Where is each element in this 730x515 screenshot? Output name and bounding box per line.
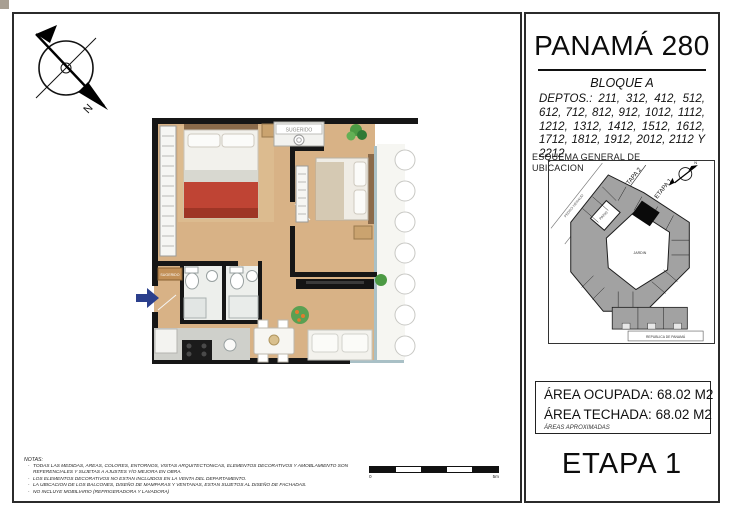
sugerido-top-label: SUGERIDO <box>286 128 313 134</box>
toilet-tank <box>230 267 243 273</box>
site-plan: PEDRO HERAUD ETAPA 2 ETAPA 1 N PATIO <box>549 161 714 343</box>
title-block: PANAMÁ 280 BLOQUE A DEPTOS.: 211, 312, 4… <box>524 12 720 503</box>
kitchen-sink-icon <box>224 339 236 351</box>
notes: NOTAS: - TODAS LAS MEDIDAS, AREAS, COLOR… <box>24 457 360 496</box>
etapa-1-label: ETAPA 1 <box>653 177 674 200</box>
toilet-icon <box>186 273 199 289</box>
fridge <box>155 329 177 353</box>
pillow <box>188 134 220 147</box>
tv-console <box>296 279 374 289</box>
bed-2-headboard <box>368 154 374 224</box>
building-ring <box>571 175 690 311</box>
corner-artifact <box>0 0 9 9</box>
balcony <box>377 144 415 360</box>
jardin-label: JARDIN <box>633 251 646 255</box>
sink-icon <box>207 271 218 282</box>
scale-min: 0 <box>369 474 372 479</box>
window-wall <box>374 146 377 360</box>
north-label: N <box>81 102 95 116</box>
plant-icon <box>375 274 387 286</box>
street-bottom-label: REPUBLICA DE PANAMÁ <box>646 335 686 339</box>
pillow <box>222 134 254 147</box>
compass-pennant-icon <box>36 25 57 43</box>
scale-bar: 0 5m <box>369 466 499 479</box>
esquema-title: ESQUEMA GENERAL DE UBICACION <box>532 152 640 175</box>
area-ocupada: ÁREA OCUPADA: 68.02 M2 <box>544 387 710 402</box>
bed-1-headboard <box>184 124 258 130</box>
washing-machine-icon <box>294 135 304 145</box>
mini-north-label: N <box>694 161 697 165</box>
laundry-suggested-top: SUGERIDO <box>274 122 324 146</box>
stove <box>182 340 212 360</box>
pillow <box>354 162 366 186</box>
nightstand-2 <box>354 226 372 239</box>
shower <box>184 298 206 318</box>
north-compass: N <box>20 22 116 118</box>
toilet-tank <box>185 267 198 273</box>
toilet-icon <box>231 273 244 289</box>
sink-icon <box>247 271 258 282</box>
title-divider <box>538 69 706 71</box>
pillow <box>354 190 366 214</box>
laundry-suggested-entry: SUGERIDO <box>158 268 182 280</box>
kitchen <box>154 328 250 360</box>
project-title: PANAMÁ 280 <box>526 30 718 62</box>
block-name: BLOQUE A <box>526 76 718 90</box>
scale-max: 5m <box>493 474 499 479</box>
sugerido-entry-label: SUGERIDO <box>160 273 179 277</box>
notes-heading: NOTAS: <box>24 457 360 463</box>
front-building-strip <box>612 307 687 329</box>
etapa-title: ETAPA 1 <box>526 448 718 481</box>
location-scheme: PEDRO HERAUD ETAPA 2 ETAPA 1 N PATIO <box>548 160 715 344</box>
closet-1 <box>160 126 176 256</box>
area-disclaimer: ÁREAS APROXIMADAS <box>544 425 710 431</box>
patio-label: PATIO <box>599 211 609 221</box>
note-item: - TODAS LAS MEDIDAS, AREAS, COLORES, ENT… <box>24 464 360 477</box>
note-item: - NO INCLUYE MOBILIARIO (REFRIGERADORA Y… <box>24 490 360 496</box>
mini-compass: N <box>669 161 699 186</box>
area-techada: ÁREA TECHADA: 68.02 M2 <box>544 407 710 422</box>
bed-1-blanket <box>184 182 258 208</box>
area-box: ÁREA OCUPADA: 68.02 M2 ÁREA TECHADA: 68.… <box>535 381 711 434</box>
bathtub <box>229 296 258 318</box>
floor-plan: SUGERIDO <box>134 118 422 366</box>
plan-sheet: N <box>12 12 522 503</box>
